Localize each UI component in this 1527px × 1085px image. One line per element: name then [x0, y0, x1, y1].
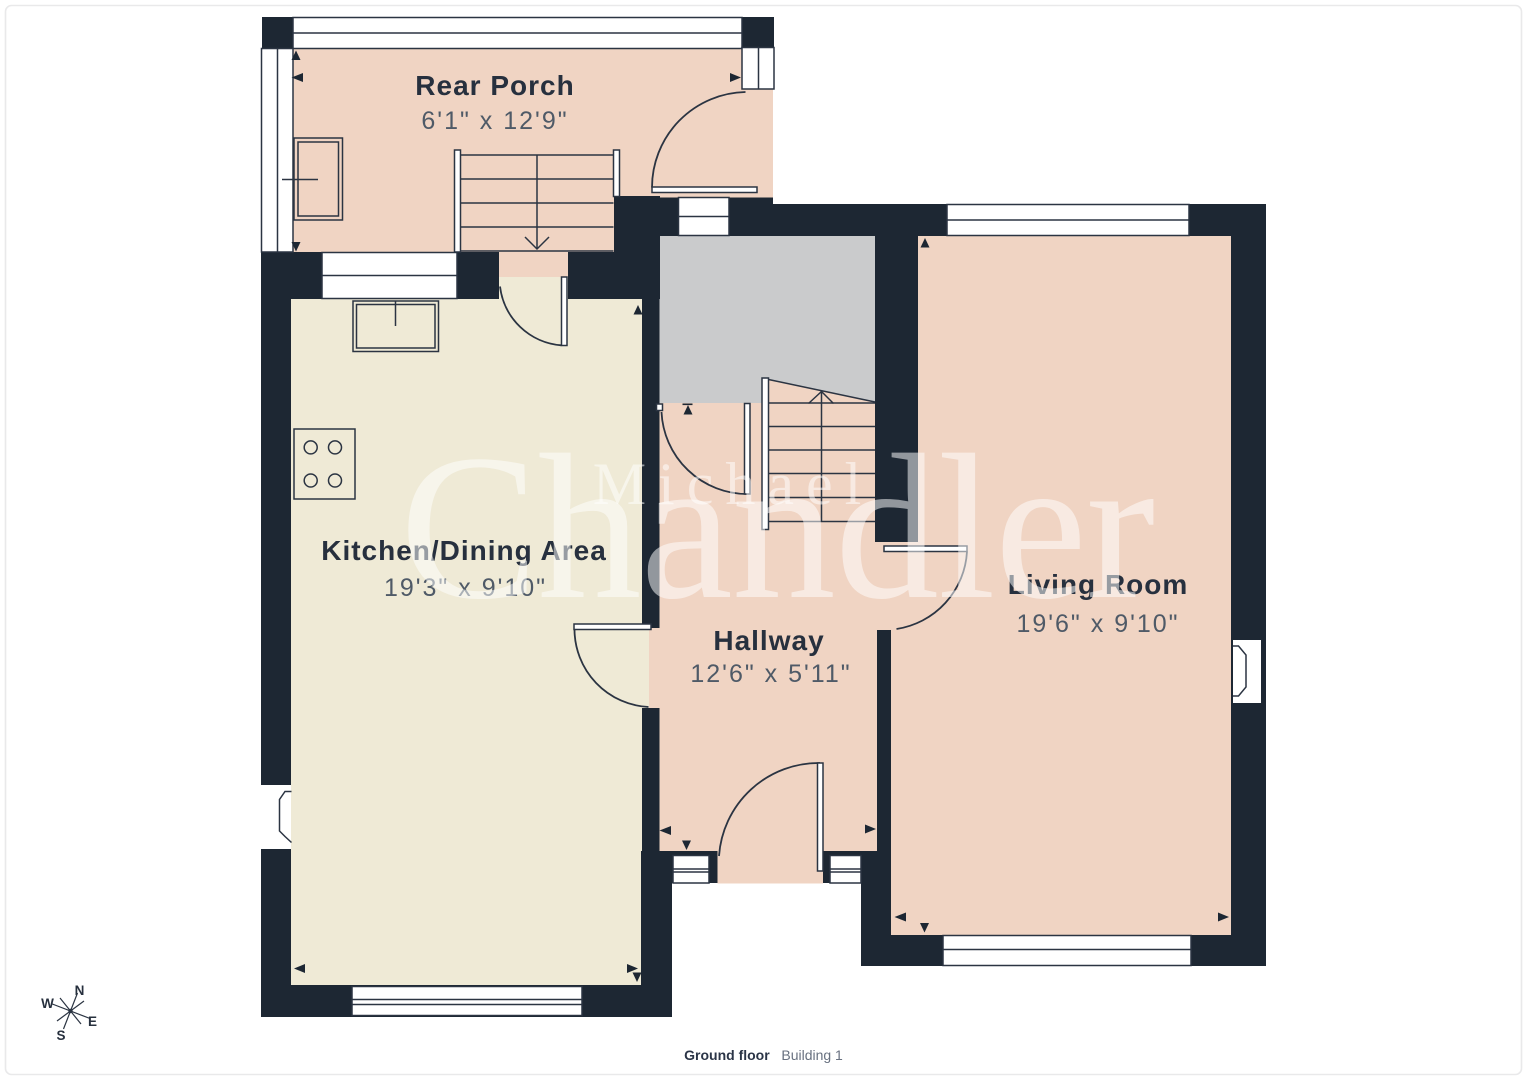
svg-text:6'1" x 12'9": 6'1" x 12'9": [421, 107, 568, 135]
svg-text:W: W: [41, 996, 54, 1011]
svg-text:Ground floor Building 1: Ground floor Building 1: [684, 1047, 843, 1063]
svg-text:S: S: [56, 1028, 65, 1043]
svg-text:Rear Porch: Rear Porch: [415, 70, 574, 101]
svg-text:Chandler: Chandler: [400, 412, 1154, 642]
svg-text:N: N: [75, 983, 85, 998]
svg-text:12'6" x 5'11": 12'6" x 5'11": [690, 660, 851, 688]
svg-text:E: E: [88, 1014, 97, 1029]
